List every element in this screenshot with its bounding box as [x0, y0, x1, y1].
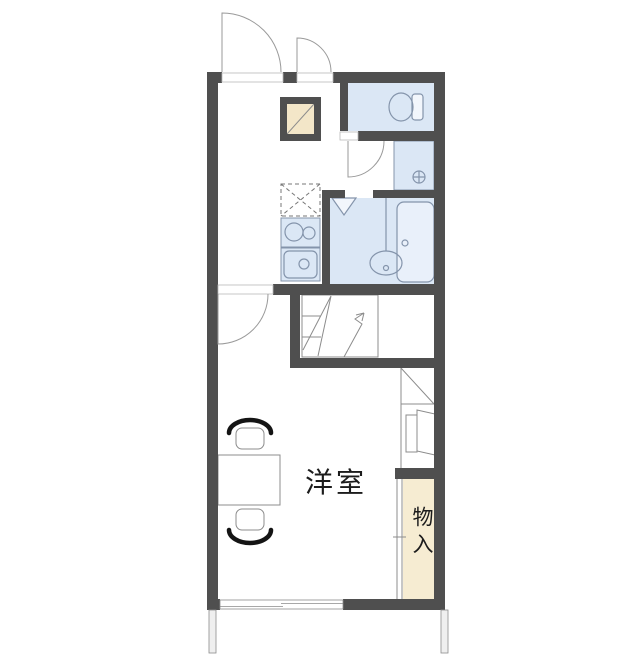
- wall-bath-left: [322, 190, 330, 295]
- wall-toilet-left: [340, 83, 348, 131]
- entrance-door-icon: [222, 13, 281, 72]
- closet-door-opening: [297, 73, 333, 82]
- room-door-icon: [218, 294, 268, 344]
- entrance-opening: [222, 73, 283, 82]
- chair-top-icon: [229, 420, 271, 449]
- washing-machine-icon: [413, 171, 425, 183]
- pipe-space: [287, 104, 314, 134]
- floor-plan-drawing: [0, 0, 640, 658]
- wall-bath-top: [373, 190, 445, 198]
- main-room-label: 洋室: [305, 461, 367, 501]
- chair-bottom-icon: [229, 509, 271, 543]
- wall-storage-top: [395, 468, 445, 479]
- washroom-door-icon: [348, 141, 384, 177]
- wall-top: [207, 72, 222, 83]
- staircase-icon: [302, 295, 378, 357]
- wall-stairs-bottom: [290, 358, 445, 368]
- laundry-area: [394, 141, 434, 190]
- appliance-space-icon: [406, 410, 435, 455]
- wall-pipe-space: [280, 134, 321, 141]
- small-door-icon: [297, 38, 331, 72]
- wall-stairs-left: [290, 284, 300, 368]
- wall-bottom: [343, 599, 445, 610]
- storage-label: 物入: [406, 506, 436, 560]
- wall-left: [207, 72, 218, 610]
- toilet-room: [348, 83, 434, 131]
- wall-top: [283, 72, 297, 83]
- wall-bottom: [207, 599, 220, 610]
- table-icon: [218, 455, 280, 505]
- wall-top: [333, 72, 445, 83]
- bathroom: [330, 198, 434, 284]
- post-left: [209, 610, 216, 653]
- kitchen-sink-icon: [281, 248, 320, 281]
- room-door-opening: [218, 285, 273, 294]
- kitchen: [281, 184, 320, 281]
- post-right: [441, 610, 448, 653]
- stove-icon: [281, 218, 320, 247]
- washer-pan: [394, 141, 434, 190]
- floor-plan: 洋室 物入: [0, 0, 640, 658]
- wall-toilet-bottom: [358, 131, 445, 141]
- sliding-window-icon: [220, 600, 343, 609]
- washroom-opening: [340, 132, 358, 140]
